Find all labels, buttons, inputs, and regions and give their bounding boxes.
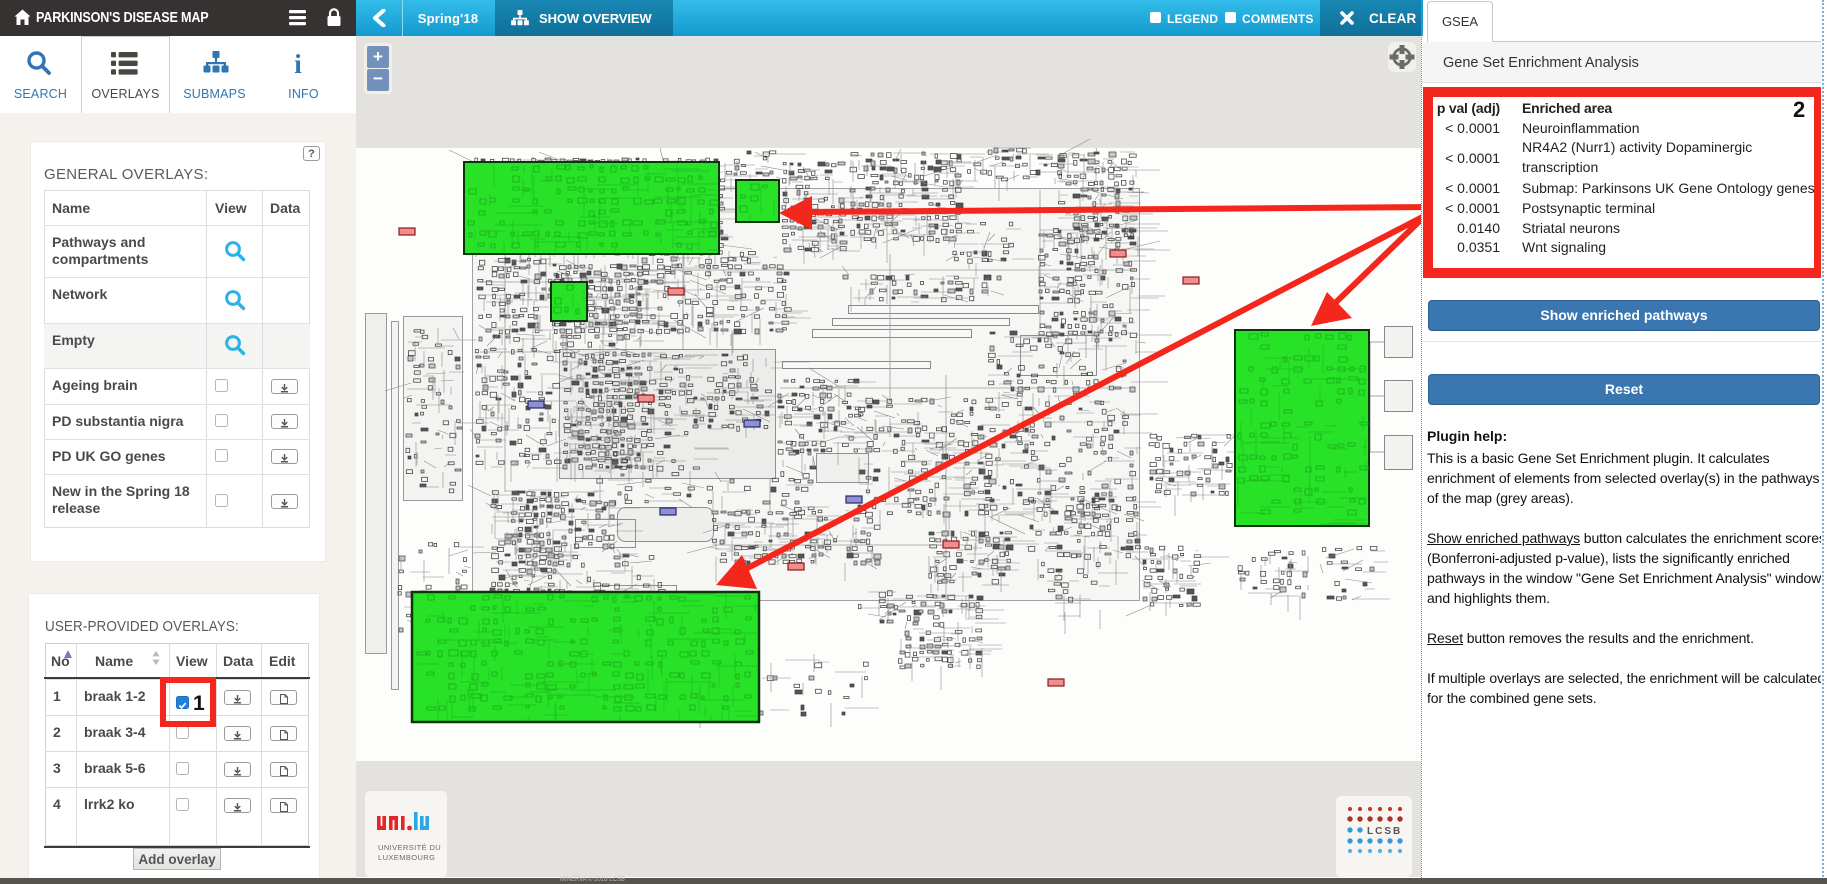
svg-text:LCSB: LCSB: [1367, 826, 1402, 837]
